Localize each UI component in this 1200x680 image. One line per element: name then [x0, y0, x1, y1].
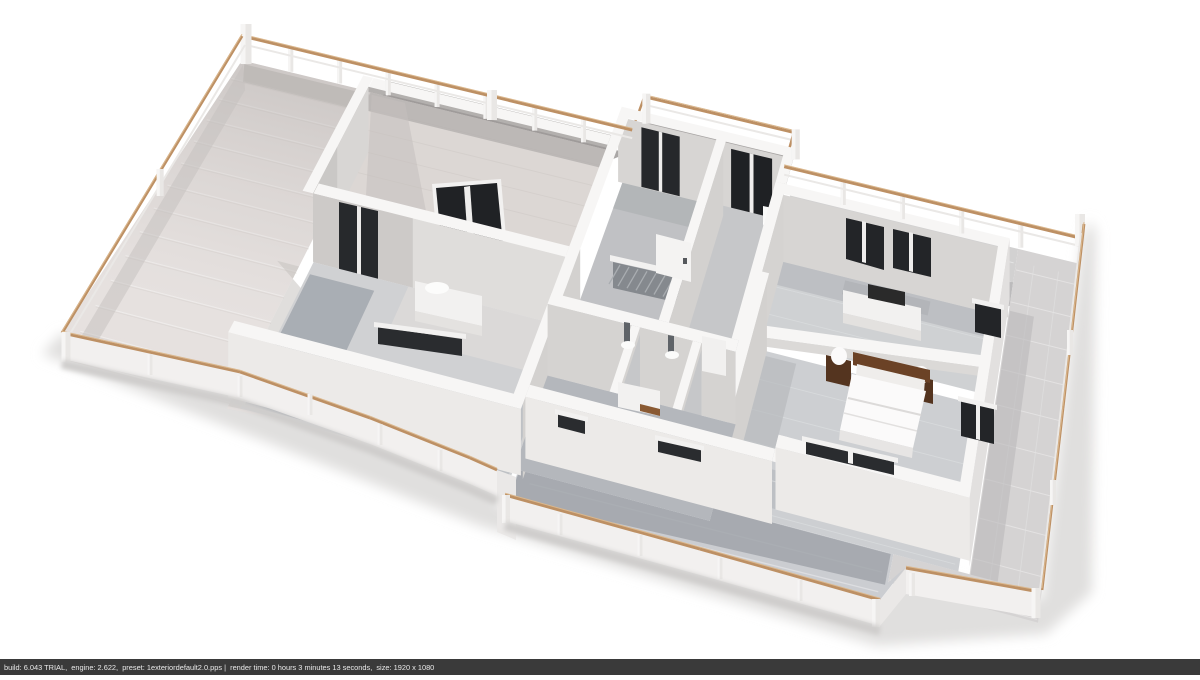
svg-text:build: 6.043 TRIAL, engine: 2: build: 6.043 TRIAL, engine: 2.622, prese… [4, 663, 434, 672]
